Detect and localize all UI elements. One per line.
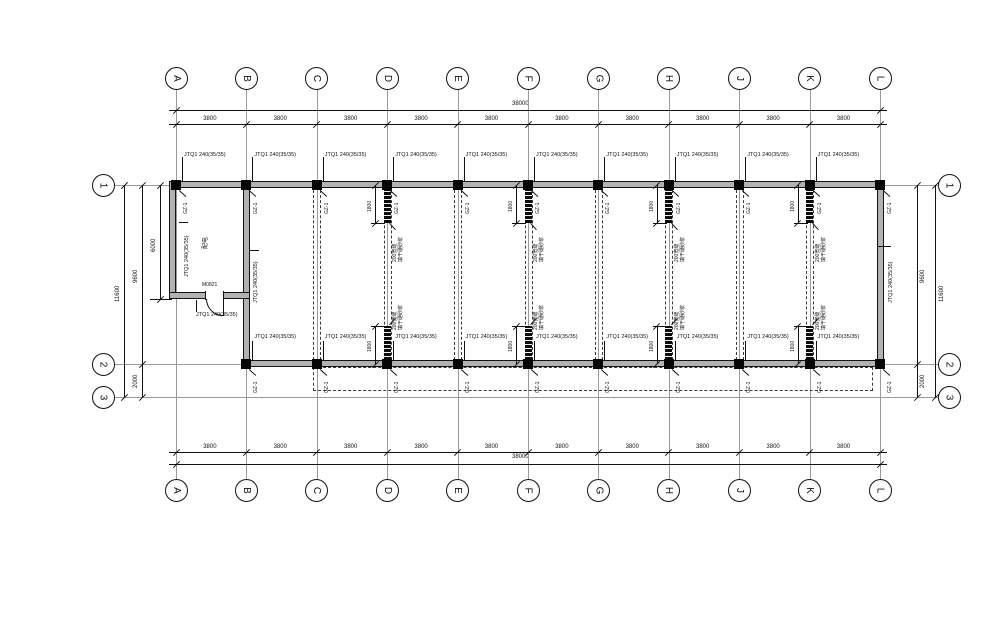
- partition-dashed-line: [391, 190, 392, 360]
- leader-line: [877, 246, 891, 247]
- partition-dashed-line: [813, 190, 814, 360]
- grid-bubble-label: F: [522, 75, 533, 81]
- grid-bubble-label: A: [170, 75, 181, 82]
- bay-dim-text-bottom: 3800: [274, 444, 287, 451]
- partition-dashed-line: [736, 190, 737, 360]
- leader-line: [249, 190, 256, 197]
- joint-hatch-strip: [525, 326, 532, 360]
- column-gz1: [805, 359, 815, 369]
- column-gz1: [805, 180, 815, 190]
- leader-line: [675, 157, 676, 181]
- joint-dim-ext: [794, 326, 808, 327]
- floor-plan-canvas: 38000 38000 11600 9600 2000 6000 9600 20…: [0, 0, 992, 638]
- wall-label-bay-bottom: JTQ1 240(35/35): [677, 334, 719, 340]
- joint-note-line: 填干硬砂浆: [540, 237, 546, 262]
- dim-depth-main-left: 9600: [133, 270, 140, 283]
- grid-bubble-bottom-D: D: [376, 479, 399, 502]
- leader-line: [675, 341, 676, 360]
- joint-dim-line: [798, 185, 799, 223]
- grid-bubble-label: 2: [944, 361, 955, 367]
- column-tag: GZ-1: [395, 203, 401, 214]
- grid-bubble-label: A: [170, 487, 181, 494]
- grid-bubble-bottom-K: K: [798, 479, 821, 502]
- joint-dim-ext: [371, 326, 385, 327]
- grid-bubble-top-C: C: [305, 67, 328, 90]
- grid-bubble-label: J: [734, 488, 745, 493]
- grid-bubble-label: E: [452, 487, 463, 494]
- column-tag: GZ-1: [254, 203, 260, 214]
- joint-hatch-strip: [665, 189, 672, 223]
- wall-label-bay-bottom: JTQ1 240(35/35): [254, 334, 296, 340]
- grid-bubble-top-D: D: [376, 67, 399, 90]
- partition-dashed-line: [454, 190, 455, 360]
- joint-note-top: 200宽缝填干硬砂浆: [534, 237, 545, 262]
- wall-label-bay-top: JTQ1 240(35/35): [818, 152, 860, 158]
- leader-line: [534, 341, 535, 360]
- dim-line-total-bottom: [169, 464, 887, 465]
- dim-total-top: 38000: [512, 101, 529, 108]
- leader-line: [883, 190, 890, 197]
- column-tag: GZ-1: [818, 382, 824, 393]
- dim-depth-total-left: 11600: [115, 286, 122, 302]
- column-gz1: [593, 180, 603, 190]
- joint-note-line: 填干硬砂浆: [821, 305, 827, 330]
- column-gz1: [382, 180, 392, 190]
- joint-hatch-strip: [806, 189, 813, 223]
- wall-grid-a: [169, 181, 176, 299]
- grid-bubble-label: F: [522, 487, 533, 493]
- bay-dim-text-top: 3800: [414, 116, 427, 123]
- column-tag: GZ-1: [888, 203, 894, 214]
- dim-room-depth: 6000: [151, 239, 158, 252]
- door-label: M0821: [202, 283, 217, 289]
- grid-bubble-bottom-J: J: [728, 479, 751, 502]
- column-gz1: [664, 180, 674, 190]
- partition-dashed-line: [532, 190, 533, 360]
- grid-bubble-label: D: [382, 486, 393, 493]
- room-name-label: 配电: [203, 237, 210, 249]
- leader-line: [250, 250, 259, 251]
- column-tag: GZ-1: [747, 382, 753, 393]
- column-tag: GZ-1: [606, 382, 612, 393]
- leader-line: [323, 341, 324, 360]
- bay-dim-text-bottom: 3800: [485, 444, 498, 451]
- bay-dim-text-bottom: 3800: [696, 444, 709, 451]
- column-gz1: [664, 359, 674, 369]
- joint-dim-line: [657, 185, 658, 223]
- grid-bubble-top-K: K: [798, 67, 821, 90]
- column-tag: GZ-1: [677, 203, 683, 214]
- grid-line-letter-D: [387, 89, 388, 479]
- grid-bubble-label: K: [804, 487, 815, 494]
- dim-depth-total-right: 11600: [939, 286, 946, 302]
- column-gz1: [241, 359, 251, 369]
- joint-dim-ext: [653, 326, 667, 327]
- grid-bubble-top-E: E: [446, 67, 469, 90]
- grid-bubble-top-L: L: [869, 67, 892, 90]
- grid-bubble-bottom-B: B: [235, 479, 258, 502]
- bay-dim-text-top: 3800: [555, 116, 568, 123]
- column-tag: GZ-1: [606, 203, 612, 214]
- bay-dim-text-top: 3800: [837, 116, 850, 123]
- dim-line-room-depth: [160, 185, 161, 299]
- grid-bubble-label: B: [241, 487, 252, 494]
- grid-bubble-bottom-A: A: [165, 479, 188, 502]
- joint-dim-line: [516, 326, 517, 364]
- bay-dim-text-bottom: 3800: [414, 444, 427, 451]
- joint-dim-ext: [512, 223, 526, 224]
- wall-label-bay-bottom: JTQ1 240(35/35): [536, 334, 578, 340]
- leader-line: [464, 341, 465, 360]
- wall-label-bay-top: JTQ1 240(35/35): [466, 152, 508, 158]
- bay-dim-text-bottom: 3800: [626, 444, 639, 451]
- column-tag: GZ-1: [536, 203, 542, 214]
- leader-line: [182, 157, 183, 181]
- door-leaf: [223, 299, 224, 316]
- joint-dim-text: 1800: [791, 201, 797, 212]
- wall-grid-b: [243, 181, 250, 367]
- dim-depth-lower-right: 2000: [920, 375, 927, 388]
- wall-label-bay-bottom: JTQ1 240(35/35): [606, 334, 648, 340]
- grid-bubble-bottom-E: E: [446, 479, 469, 502]
- grid-bubble-label: J: [734, 76, 745, 81]
- partition-dashed-line: [461, 190, 462, 360]
- partition-dashed-line: [743, 190, 744, 360]
- dim-line-depth-total-left: [124, 185, 125, 397]
- column-gz1: [875, 359, 885, 369]
- grid-bubble-label: L: [875, 75, 886, 81]
- column-gz1: [734, 359, 744, 369]
- joint-dim-ext: [794, 223, 808, 224]
- wall-label-grid-b: JTQ1 240(35/35): [253, 261, 259, 303]
- leader-line: [393, 341, 394, 360]
- partition-dashed-line: [313, 190, 314, 360]
- grid-bubble-right-1: 1: [938, 174, 961, 197]
- column-tag: GZ-1: [184, 203, 190, 214]
- partition-dashed-line: [672, 190, 673, 360]
- partition-dashed-line: [595, 190, 596, 360]
- column-gz1: [382, 359, 392, 369]
- wall-label-bay-top: JTQ1 240(35/35): [747, 152, 789, 158]
- bay-dim-text-top: 3800: [696, 116, 709, 123]
- joint-dim-text: 1800: [368, 201, 374, 212]
- joint-dim-text: 1800: [791, 341, 797, 352]
- wall-label-bay-bottom: JTQ1 240(35/35): [818, 334, 860, 340]
- column-tag: GZ-1: [254, 382, 260, 393]
- joint-note-top: 200宽缝填干硬砂浆: [816, 237, 827, 262]
- bay-dim-text-top: 3800: [766, 116, 779, 123]
- dim-line-depth-total-right: [935, 185, 936, 397]
- column-gz1: [453, 180, 463, 190]
- grid-bubble-right-3: 3: [938, 386, 961, 409]
- grid-line-letter-J: [739, 89, 740, 479]
- leader-line: [249, 369, 256, 376]
- joint-hatch-strip: [665, 326, 672, 360]
- grid-bubble-bottom-C: C: [305, 479, 328, 502]
- column-gz1: [593, 359, 603, 369]
- joint-dim-line: [798, 326, 799, 364]
- column-tag: GZ-1: [325, 203, 331, 214]
- leader-line: [883, 369, 890, 376]
- grid-line-letter-A: [176, 89, 177, 479]
- grid-bubble-top-A: A: [165, 67, 188, 90]
- wall-label-grid-l: JTQ1 240(35/35): [888, 261, 894, 303]
- joint-hatch-strip: [525, 189, 532, 223]
- wall-label-bay-bottom: JTQ1 240(35/35): [466, 334, 508, 340]
- column-gz1: [453, 359, 463, 369]
- column-tag: GZ-1: [395, 382, 401, 393]
- wall-label-bay-bottom: JTQ1 240(35/35): [395, 334, 437, 340]
- grid-bubble-label: 3: [944, 394, 955, 400]
- extension-line: [150, 299, 172, 300]
- column-tag: GZ-1: [677, 382, 683, 393]
- joint-dim-ext: [653, 223, 667, 224]
- joint-note-line: 填干硬砂浆: [399, 305, 405, 330]
- grid-bubble-label: C: [311, 486, 322, 493]
- wall-label-bay-top: JTQ1 240(35/35): [254, 152, 296, 158]
- leader-line: [604, 157, 605, 181]
- grid-bubble-top-H: H: [657, 67, 680, 90]
- leader-line: [816, 341, 817, 360]
- partition-dashed-line: [320, 190, 321, 360]
- joint-dim-line: [375, 185, 376, 223]
- column-gz1: [523, 180, 533, 190]
- wall-grid-l: [877, 181, 884, 367]
- joint-note-line: 填干硬砂浆: [680, 237, 686, 262]
- bay-dim-text-top: 3800: [274, 116, 287, 123]
- column-gz1: [734, 180, 744, 190]
- grid-bubble-label: G: [593, 486, 604, 494]
- joint-dim-ext: [371, 223, 385, 224]
- wall-label-bay-top: JTQ1 240(35/35): [606, 152, 648, 158]
- column-tag: GZ-1: [325, 382, 331, 393]
- joint-note-line: 填干硬砂浆: [821, 237, 827, 262]
- bay-dim-text-top: 3800: [344, 116, 357, 123]
- grid-bubble-label: B: [241, 75, 252, 82]
- leader-line: [179, 222, 188, 223]
- dim-depth-main-right: 9600: [920, 270, 927, 283]
- column-tag: GZ-1: [536, 382, 542, 393]
- grid-bubble-bottom-G: G: [587, 479, 610, 502]
- grid-bubble-label: 3: [98, 394, 109, 400]
- grid-bubble-top-G: G: [587, 67, 610, 90]
- joint-hatch-strip: [384, 189, 391, 223]
- dim-line-total-top: [169, 110, 887, 111]
- leader-line: [196, 300, 197, 312]
- joint-note-line: 填干硬砂浆: [540, 305, 546, 330]
- column-gz1: [875, 180, 885, 190]
- column-gz1: [523, 359, 533, 369]
- grid-bubble-left-3: 3: [92, 386, 115, 409]
- joint-dim-text: 1800: [509, 201, 515, 212]
- column-tag: GZ-1: [818, 203, 824, 214]
- bay-dim-text-bottom: 3800: [344, 444, 357, 451]
- wall-label-bay-top: JTQ1 240(35/35): [325, 152, 367, 158]
- joint-note-top: 200宽缝填干硬砂浆: [675, 237, 686, 262]
- leader-line: [816, 157, 817, 181]
- column-gz1: [312, 180, 322, 190]
- joint-dim-ext: [512, 326, 526, 327]
- leader-line: [604, 341, 605, 360]
- grid-bubble-label: G: [593, 74, 604, 82]
- grid-bubble-label: E: [452, 75, 463, 82]
- grid-bubble-label: L: [875, 487, 886, 493]
- dim-depth-lower-left: 2000: [133, 375, 140, 388]
- grid-bubble-label: 1: [944, 182, 955, 188]
- grid-bubble-right-2: 2: [938, 353, 961, 376]
- bay-dim-text-bottom: 3800: [203, 444, 216, 451]
- wall-label-bay-top: JTQ1 240(35/35): [395, 152, 437, 158]
- joint-dim-text: 1800: [650, 201, 656, 212]
- column-gz1: [171, 180, 181, 190]
- bay-dim-text-top: 3800: [203, 116, 216, 123]
- joint-note-line: 填干硬砂浆: [399, 237, 405, 262]
- grid-bubble-left-1: 1: [92, 174, 115, 197]
- wall-label-room-left: JTQ1 240(35/35): [184, 235, 190, 277]
- grid-bubble-label: K: [804, 75, 815, 82]
- grid-bubble-bottom-H: H: [657, 479, 680, 502]
- leader-line: [252, 157, 253, 181]
- wall-label-bay-bottom: JTQ1 240(35/35): [325, 334, 367, 340]
- bay-dim-text-bottom: 3800: [837, 444, 850, 451]
- column-tag: GZ-1: [888, 382, 894, 393]
- grid-bubble-label: C: [311, 74, 322, 81]
- leader-line: [464, 157, 465, 181]
- grid-bubble-top-J: J: [728, 67, 751, 90]
- joint-note-line: 填干硬砂浆: [680, 305, 686, 330]
- leader-line: [179, 190, 186, 197]
- grid-bubble-label: D: [382, 74, 393, 81]
- bay-dim-text-bottom: 3800: [555, 444, 568, 451]
- wall-label-bay-bottom: JTQ1 240(35/35): [747, 334, 789, 340]
- grid-bubble-label: H: [663, 74, 674, 81]
- column-gz1: [241, 180, 251, 190]
- grid-bubble-label: H: [663, 486, 674, 493]
- bay-dim-text-top: 3800: [485, 116, 498, 123]
- column-tag: GZ-1: [747, 203, 753, 214]
- leader-line: [323, 157, 324, 181]
- bay-dim-text-top: 3800: [626, 116, 639, 123]
- joint-note-top: 200宽缝填干硬砂浆: [393, 237, 404, 262]
- grid-bubble-label: 1: [98, 182, 109, 188]
- grid-bubble-bottom-L: L: [869, 479, 892, 502]
- grid-bubble-label: 2: [98, 361, 109, 367]
- grid-bubble-top-F: F: [517, 67, 540, 90]
- grid-line-letter-F: [528, 89, 529, 479]
- joint-dim-text: 1800: [650, 341, 656, 352]
- grid-line-letter-C: [317, 89, 318, 479]
- joint-dim-text: 1800: [368, 341, 374, 352]
- grid-bubble-bottom-F: F: [517, 479, 540, 502]
- column-tag: GZ-1: [466, 203, 472, 214]
- wall-grid-2: [242, 360, 884, 367]
- leader-line: [745, 341, 746, 360]
- grid-line-letter-H: [669, 89, 670, 479]
- joint-dim-line: [375, 326, 376, 364]
- grid-bubble-left-2: 2: [92, 353, 115, 376]
- grid-line-number-3: [114, 397, 938, 398]
- leader-line: [393, 157, 394, 181]
- wall-label-bay-top: JTQ1 240(35/35): [184, 152, 226, 158]
- partition-dashed-line: [602, 190, 603, 360]
- leader-line: [252, 341, 253, 360]
- bay-dim-text-bottom: 3800: [766, 444, 779, 451]
- grid-line-letter-G: [598, 89, 599, 479]
- joint-dim-line: [657, 326, 658, 364]
- wall-label-bay-top: JTQ1 240(35/35): [677, 152, 719, 158]
- joint-dim-text: 1800: [509, 341, 515, 352]
- column-tag: GZ-1: [466, 382, 472, 393]
- grid-line-letter-K: [810, 89, 811, 479]
- column-gz1: [312, 359, 322, 369]
- leader-line: [745, 157, 746, 181]
- joint-dim-line: [516, 185, 517, 223]
- wall-label-bay-top: JTQ1 240(35/35): [536, 152, 578, 158]
- grid-bubble-top-B: B: [235, 67, 258, 90]
- joint-hatch-strip: [384, 326, 391, 360]
- leader-line: [534, 157, 535, 181]
- grid-line-letter-E: [458, 89, 459, 479]
- joint-hatch-strip: [806, 326, 813, 360]
